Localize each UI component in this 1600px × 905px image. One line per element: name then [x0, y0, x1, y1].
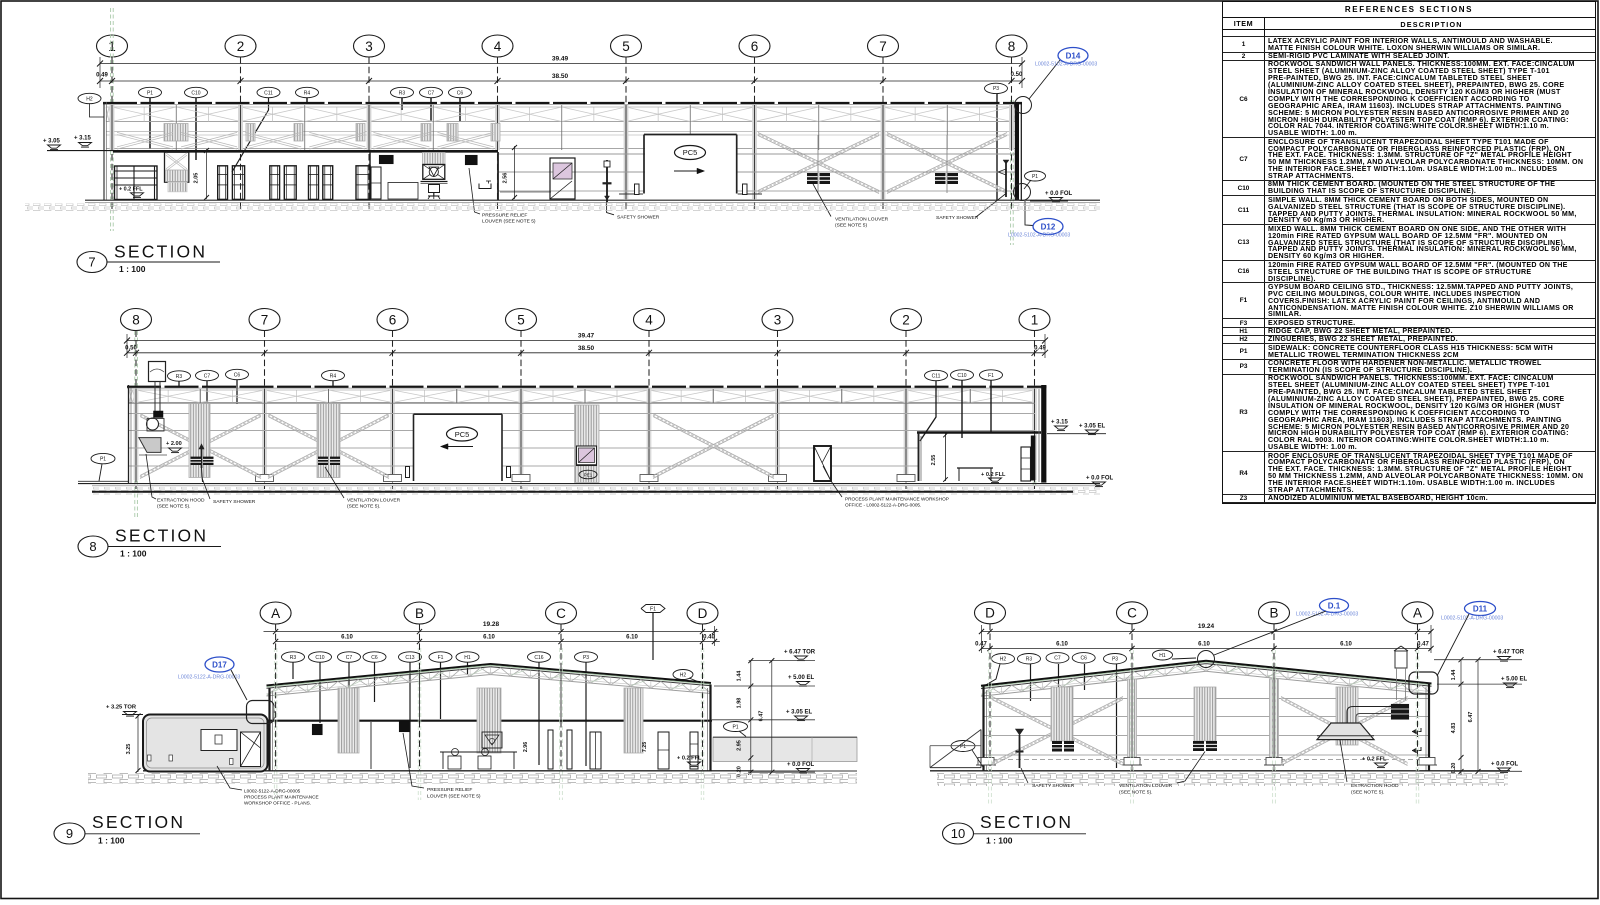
svg-text:A: A [1413, 606, 1422, 621]
svg-text:1 : 100: 1 : 100 [120, 549, 147, 559]
svg-text:6: 6 [751, 39, 759, 54]
svg-text:+ 3.05 EL: + 3.05 EL [786, 710, 813, 716]
svg-text:5: 5 [622, 39, 630, 54]
svg-text:1.98: 1.98 [737, 698, 743, 709]
svg-text:4: 4 [494, 39, 502, 54]
svg-text:C13: C13 [405, 655, 414, 661]
svg-text:L0002-5102-A-DRG-00003: L0002-5102-A-DRG-00003 [1296, 612, 1358, 618]
svg-text:C7: C7 [346, 655, 353, 661]
svg-text:6.10: 6.10 [626, 635, 638, 641]
svg-text:F1: F1 [650, 607, 656, 613]
svg-text:6.10: 6.10 [483, 635, 495, 641]
svg-text:10: 10 [951, 826, 965, 841]
svg-text:H2: H2 [1000, 657, 1007, 663]
svg-text:+ 0.0 FOL: + 0.0 FOL [1045, 191, 1073, 197]
svg-text:+ 6.47 TOR: + 6.47 TOR [784, 650, 816, 656]
svg-text:D: D [985, 606, 995, 621]
svg-text:EXTRACTION HOOD: EXTRACTION HOOD [157, 498, 205, 504]
svg-text:1: 1 [108, 39, 116, 54]
svg-text:C10: C10 [191, 90, 200, 96]
svg-text:PRESSURE RELIEF: PRESSURE RELIEF [427, 787, 472, 793]
svg-text:SAFETY SHOWER: SAFETY SHOWER [213, 499, 256, 505]
svg-text:+ 3.25 TOR: + 3.25 TOR [106, 705, 137, 711]
svg-text:6.10: 6.10 [1198, 642, 1210, 648]
svg-text:SECTION: SECTION [92, 812, 185, 832]
svg-text:C: C [556, 606, 566, 621]
svg-text:R3: R3 [290, 655, 297, 661]
svg-text:(SEE NOTE 5): (SEE NOTE 5) [835, 223, 867, 229]
svg-text:D.1: D.1 [1328, 602, 1341, 611]
svg-text:F1: F1 [988, 373, 994, 379]
svg-text:2: 2 [237, 39, 245, 54]
svg-text:+ 2.00: + 2.00 [166, 441, 182, 447]
svg-text:SAFETY SHOWER: SAFETY SHOWER [936, 215, 979, 221]
svg-text:38.50: 38.50 [578, 345, 595, 352]
svg-text:+ 0.2 FFL: + 0.2 FFL [1362, 757, 1387, 763]
svg-text:C7: C7 [1054, 656, 1061, 662]
svg-text:LOUVER (SEE NOTE 5): LOUVER (SEE NOTE 5) [482, 219, 536, 225]
svg-text:SECTION: SECTION [114, 242, 207, 262]
svg-text:C11: C11 [932, 373, 941, 379]
svg-text:3: 3 [365, 39, 373, 54]
svg-text:5: 5 [517, 312, 525, 327]
svg-text:1 : 100: 1 : 100 [98, 836, 125, 846]
svg-text:6.10: 6.10 [1056, 642, 1068, 648]
svg-text:C6: C6 [234, 372, 241, 378]
svg-text:L0002-5102-A-DRG-00003: L0002-5102-A-DRG-00003 [1441, 616, 1503, 622]
svg-text:2.05: 2.05 [194, 173, 200, 184]
svg-text:+ 3.05: + 3.05 [43, 139, 61, 145]
svg-text:8: 8 [89, 539, 96, 554]
svg-text:VENTILATION LOUVER: VENTILATION LOUVER [835, 217, 889, 223]
svg-text:(SEE NOTE 5).: (SEE NOTE 5). [157, 504, 190, 510]
svg-text:D11: D11 [1473, 605, 1488, 614]
svg-text:VENTILATION LOUVER: VENTILATION LOUVER [1119, 783, 1173, 789]
svg-text:(SEE NOTE 5).: (SEE NOTE 5). [1351, 790, 1384, 796]
svg-text:0.50: 0.50 [1011, 72, 1023, 78]
svg-text:P1: P1 [147, 90, 153, 96]
svg-text:PC5: PC5 [455, 430, 470, 439]
svg-text:2.55: 2.55 [931, 455, 937, 466]
svg-text:19.24: 19.24 [1198, 623, 1215, 630]
svg-text:R3: R3 [1026, 657, 1033, 663]
svg-text:3.25: 3.25 [126, 744, 132, 755]
svg-text:+ 3.15: + 3.15 [74, 136, 92, 142]
svg-text:P3: P3 [1112, 657, 1118, 663]
svg-text:LOUVER (SEE NOTE 5): LOUVER (SEE NOTE 5) [427, 794, 481, 800]
svg-text:C: C [1127, 606, 1137, 621]
svg-text:2.56: 2.56 [503, 173, 509, 184]
svg-text:+ 0.2 FFL: + 0.2 FFL [677, 756, 702, 762]
svg-text:C7: C7 [204, 373, 211, 379]
svg-text:C16: C16 [534, 655, 543, 661]
svg-text:C11: C11 [264, 90, 273, 96]
svg-text:(SEE NOTE 5).: (SEE NOTE 5). [347, 504, 380, 510]
svg-text:PRESSURE RELIEF: PRESSURE RELIEF [482, 213, 527, 219]
svg-text:6.10: 6.10 [1340, 642, 1352, 648]
svg-text:8: 8 [132, 312, 140, 327]
svg-text:C6: C6 [457, 90, 464, 96]
svg-text:6: 6 [389, 312, 397, 327]
svg-text:9: 9 [66, 826, 73, 841]
svg-text:0.20: 0.20 [1451, 763, 1457, 774]
svg-text:38.50: 38.50 [552, 73, 569, 80]
svg-text:PC5: PC5 [683, 148, 698, 157]
svg-text:+ 6.47 TOR: + 6.47 TOR [1493, 650, 1525, 656]
svg-text:3: 3 [774, 312, 782, 327]
svg-text:8: 8 [1008, 39, 1016, 54]
svg-text:OFFICE - L0002-5122-A-DRG-0005: OFFICE - L0002-5122-A-DRG-0005. [845, 503, 921, 508]
svg-text:SAFETY SHOWER: SAFETY SHOWER [1032, 783, 1075, 789]
svg-text:PROCESS PLANT MAINTENANCE: PROCESS PLANT MAINTENANCE [244, 795, 319, 800]
svg-text:2.95: 2.95 [737, 740, 743, 751]
svg-text:+ 0.0 FOL: + 0.0 FOL [787, 762, 815, 768]
svg-text:1: 1 [1031, 312, 1039, 327]
svg-text:2: 2 [902, 312, 910, 327]
svg-text:C6: C6 [371, 655, 378, 661]
svg-text:SECTION: SECTION [980, 812, 1073, 832]
svg-text:C7: C7 [428, 90, 435, 96]
svg-text:1.44: 1.44 [1451, 669, 1457, 681]
svg-text:F1: F1 [438, 655, 444, 661]
svg-text:H1: H1 [464, 655, 471, 661]
svg-text:7: 7 [261, 312, 269, 327]
svg-text:P3: P3 [993, 86, 999, 92]
svg-text:L0002-5102-A-DRG-00003: L0002-5102-A-DRG-00003 [1008, 233, 1070, 239]
svg-text:+ 5.00 EL: + 5.00 EL [1501, 677, 1528, 683]
svg-text:7: 7 [88, 255, 95, 270]
svg-text:R3: R3 [176, 374, 183, 380]
svg-text:+ 3.05 EL: + 3.05 EL [1079, 424, 1106, 430]
svg-text:L0002-5102-A-DRG-00003: L0002-5102-A-DRG-00003 [1035, 62, 1097, 68]
svg-text:+ 0.0 FOL: + 0.0 FOL [1491, 762, 1519, 768]
svg-text:SECTION: SECTION [115, 526, 208, 546]
svg-text:39.49: 39.49 [552, 56, 569, 63]
svg-text:PE1: PE1 [584, 472, 593, 477]
svg-text:R3: R3 [399, 90, 406, 96]
svg-text:A: A [271, 606, 280, 621]
svg-text:6.47: 6.47 [1468, 712, 1474, 723]
svg-text:1 : 100: 1 : 100 [119, 264, 146, 274]
svg-text:D17: D17 [212, 661, 227, 670]
svg-text:0.49: 0.49 [96, 73, 108, 79]
svg-text:D14: D14 [1066, 52, 1081, 61]
svg-text:L0002-5122-A-DRG-00005: L0002-5122-A-DRG-00005 [244, 789, 301, 794]
svg-text:C6: C6 [1080, 656, 1087, 662]
svg-text:1 : 100: 1 : 100 [986, 836, 1013, 846]
svg-text:H2: H2 [680, 672, 687, 678]
svg-text:4: 4 [645, 312, 653, 327]
svg-text:4.83: 4.83 [1451, 723, 1457, 734]
svg-text:SAFETY SHOWER: SAFETY SHOWER [617, 215, 660, 221]
svg-text:1.44: 1.44 [737, 670, 743, 682]
svg-text:7.25: 7.25 [642, 742, 648, 752]
svg-text:2.96: 2.96 [523, 742, 529, 752]
svg-text:19.28: 19.28 [483, 621, 500, 628]
svg-text:B: B [1269, 606, 1278, 621]
svg-text:H1: H1 [1159, 653, 1166, 659]
svg-text:P1: P1 [732, 724, 738, 730]
svg-text:PROCESS PLANT MAINTENANCE WORK: PROCESS PLANT MAINTENANCE WORKSHOP [845, 497, 949, 502]
svg-text:EXTRACTION HOOD: EXTRACTION HOOD [1351, 783, 1399, 789]
svg-text:+ 0.2 FLL: + 0.2 FLL [981, 472, 1006, 478]
svg-text:C10: C10 [315, 655, 324, 661]
svg-text:+ 0.0 FOL: + 0.0 FOL [1086, 476, 1114, 482]
svg-text:P1: P1 [1032, 174, 1038, 180]
svg-text:39.47: 39.47 [578, 333, 595, 340]
svg-text:R4: R4 [330, 373, 337, 379]
svg-text:P3: P3 [583, 655, 589, 661]
svg-text:D: D [698, 606, 708, 621]
svg-text:VENTILATION LOUVER: VENTILATION LOUVER [347, 498, 401, 504]
svg-text:+ 5.00 EL: + 5.00 EL [788, 675, 815, 681]
svg-text:+ 0.2 FFL: + 0.2 FFL [119, 187, 143, 193]
svg-text:P1: P1 [100, 456, 106, 462]
svg-text:B: B [415, 606, 424, 621]
svg-text:D12: D12 [1041, 223, 1056, 232]
svg-text:L0002-5122-A-DRG-00003: L0002-5122-A-DRG-00003 [178, 675, 240, 681]
svg-text:WORKSHOP OFFICE - PLANS.: WORKSHOP OFFICE - PLANS. [244, 801, 311, 806]
svg-text:H2: H2 [86, 96, 93, 102]
svg-text:C10: C10 [957, 373, 966, 379]
svg-text:+ 3.15: + 3.15 [1051, 420, 1069, 426]
svg-text:6.10: 6.10 [341, 635, 353, 641]
svg-text:(SEE NOTE 5).: (SEE NOTE 5). [1119, 790, 1152, 796]
svg-text:7: 7 [879, 39, 887, 54]
svg-text:R4: R4 [304, 90, 311, 96]
